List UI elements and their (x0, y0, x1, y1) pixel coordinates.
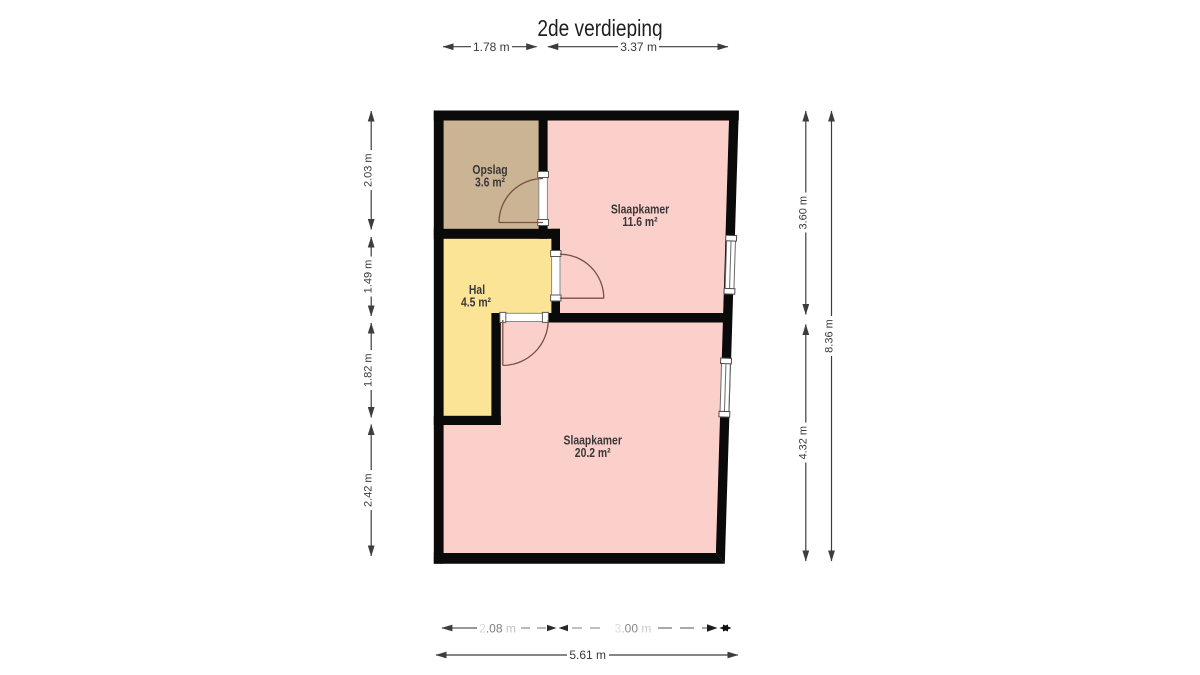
svg-text:20.2 m²: 20.2 m² (575, 446, 611, 460)
svg-text:2.42 m: 2.42 m (363, 473, 375, 507)
svg-text:11.6 m²: 11.6 m² (622, 215, 657, 229)
svg-text:3.6 m²: 3.6 m² (475, 175, 505, 189)
svg-text:1.78 m: 1.78 m (473, 40, 510, 54)
svg-text:4.5 m²: 4.5 m² (461, 295, 491, 309)
svg-text:1.49 m: 1.49 m (363, 260, 375, 294)
svg-text:2de verdieping: 2de verdieping (537, 16, 662, 41)
svg-text:8.36 m: 8.36 m (823, 319, 835, 353)
svg-text:4.32 m: 4.32 m (797, 426, 809, 460)
svg-text:1.82 m: 1.82 m (363, 353, 375, 387)
svg-text:2.03 m: 2.03 m (363, 153, 375, 187)
svg-text:3.60 m: 3.60 m (797, 196, 809, 230)
svg-text:3.00 m: 3.00 m (615, 621, 652, 635)
svg-text:5.61 m: 5.61 m (569, 648, 606, 662)
svg-text:2.08 m: 2.08 m (479, 621, 516, 635)
svg-text:3.37 m: 3.37 m (620, 40, 657, 54)
